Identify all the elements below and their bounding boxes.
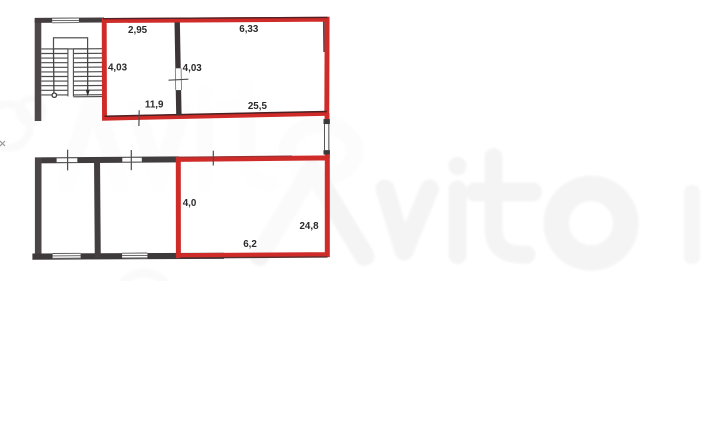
svg-text:6,2: 6,2 xyxy=(243,239,257,250)
svg-text:2,95: 2,95 xyxy=(128,25,148,36)
svg-text:4,03: 4,03 xyxy=(183,63,203,74)
svg-text:6,33: 6,33 xyxy=(239,24,259,35)
svg-text:4,0: 4,0 xyxy=(183,198,197,209)
svg-text:4,03: 4,03 xyxy=(108,63,128,74)
svg-text:11,9: 11,9 xyxy=(145,99,164,110)
svg-text:25,5: 25,5 xyxy=(248,101,268,112)
svg-text:24,8: 24,8 xyxy=(299,221,319,232)
